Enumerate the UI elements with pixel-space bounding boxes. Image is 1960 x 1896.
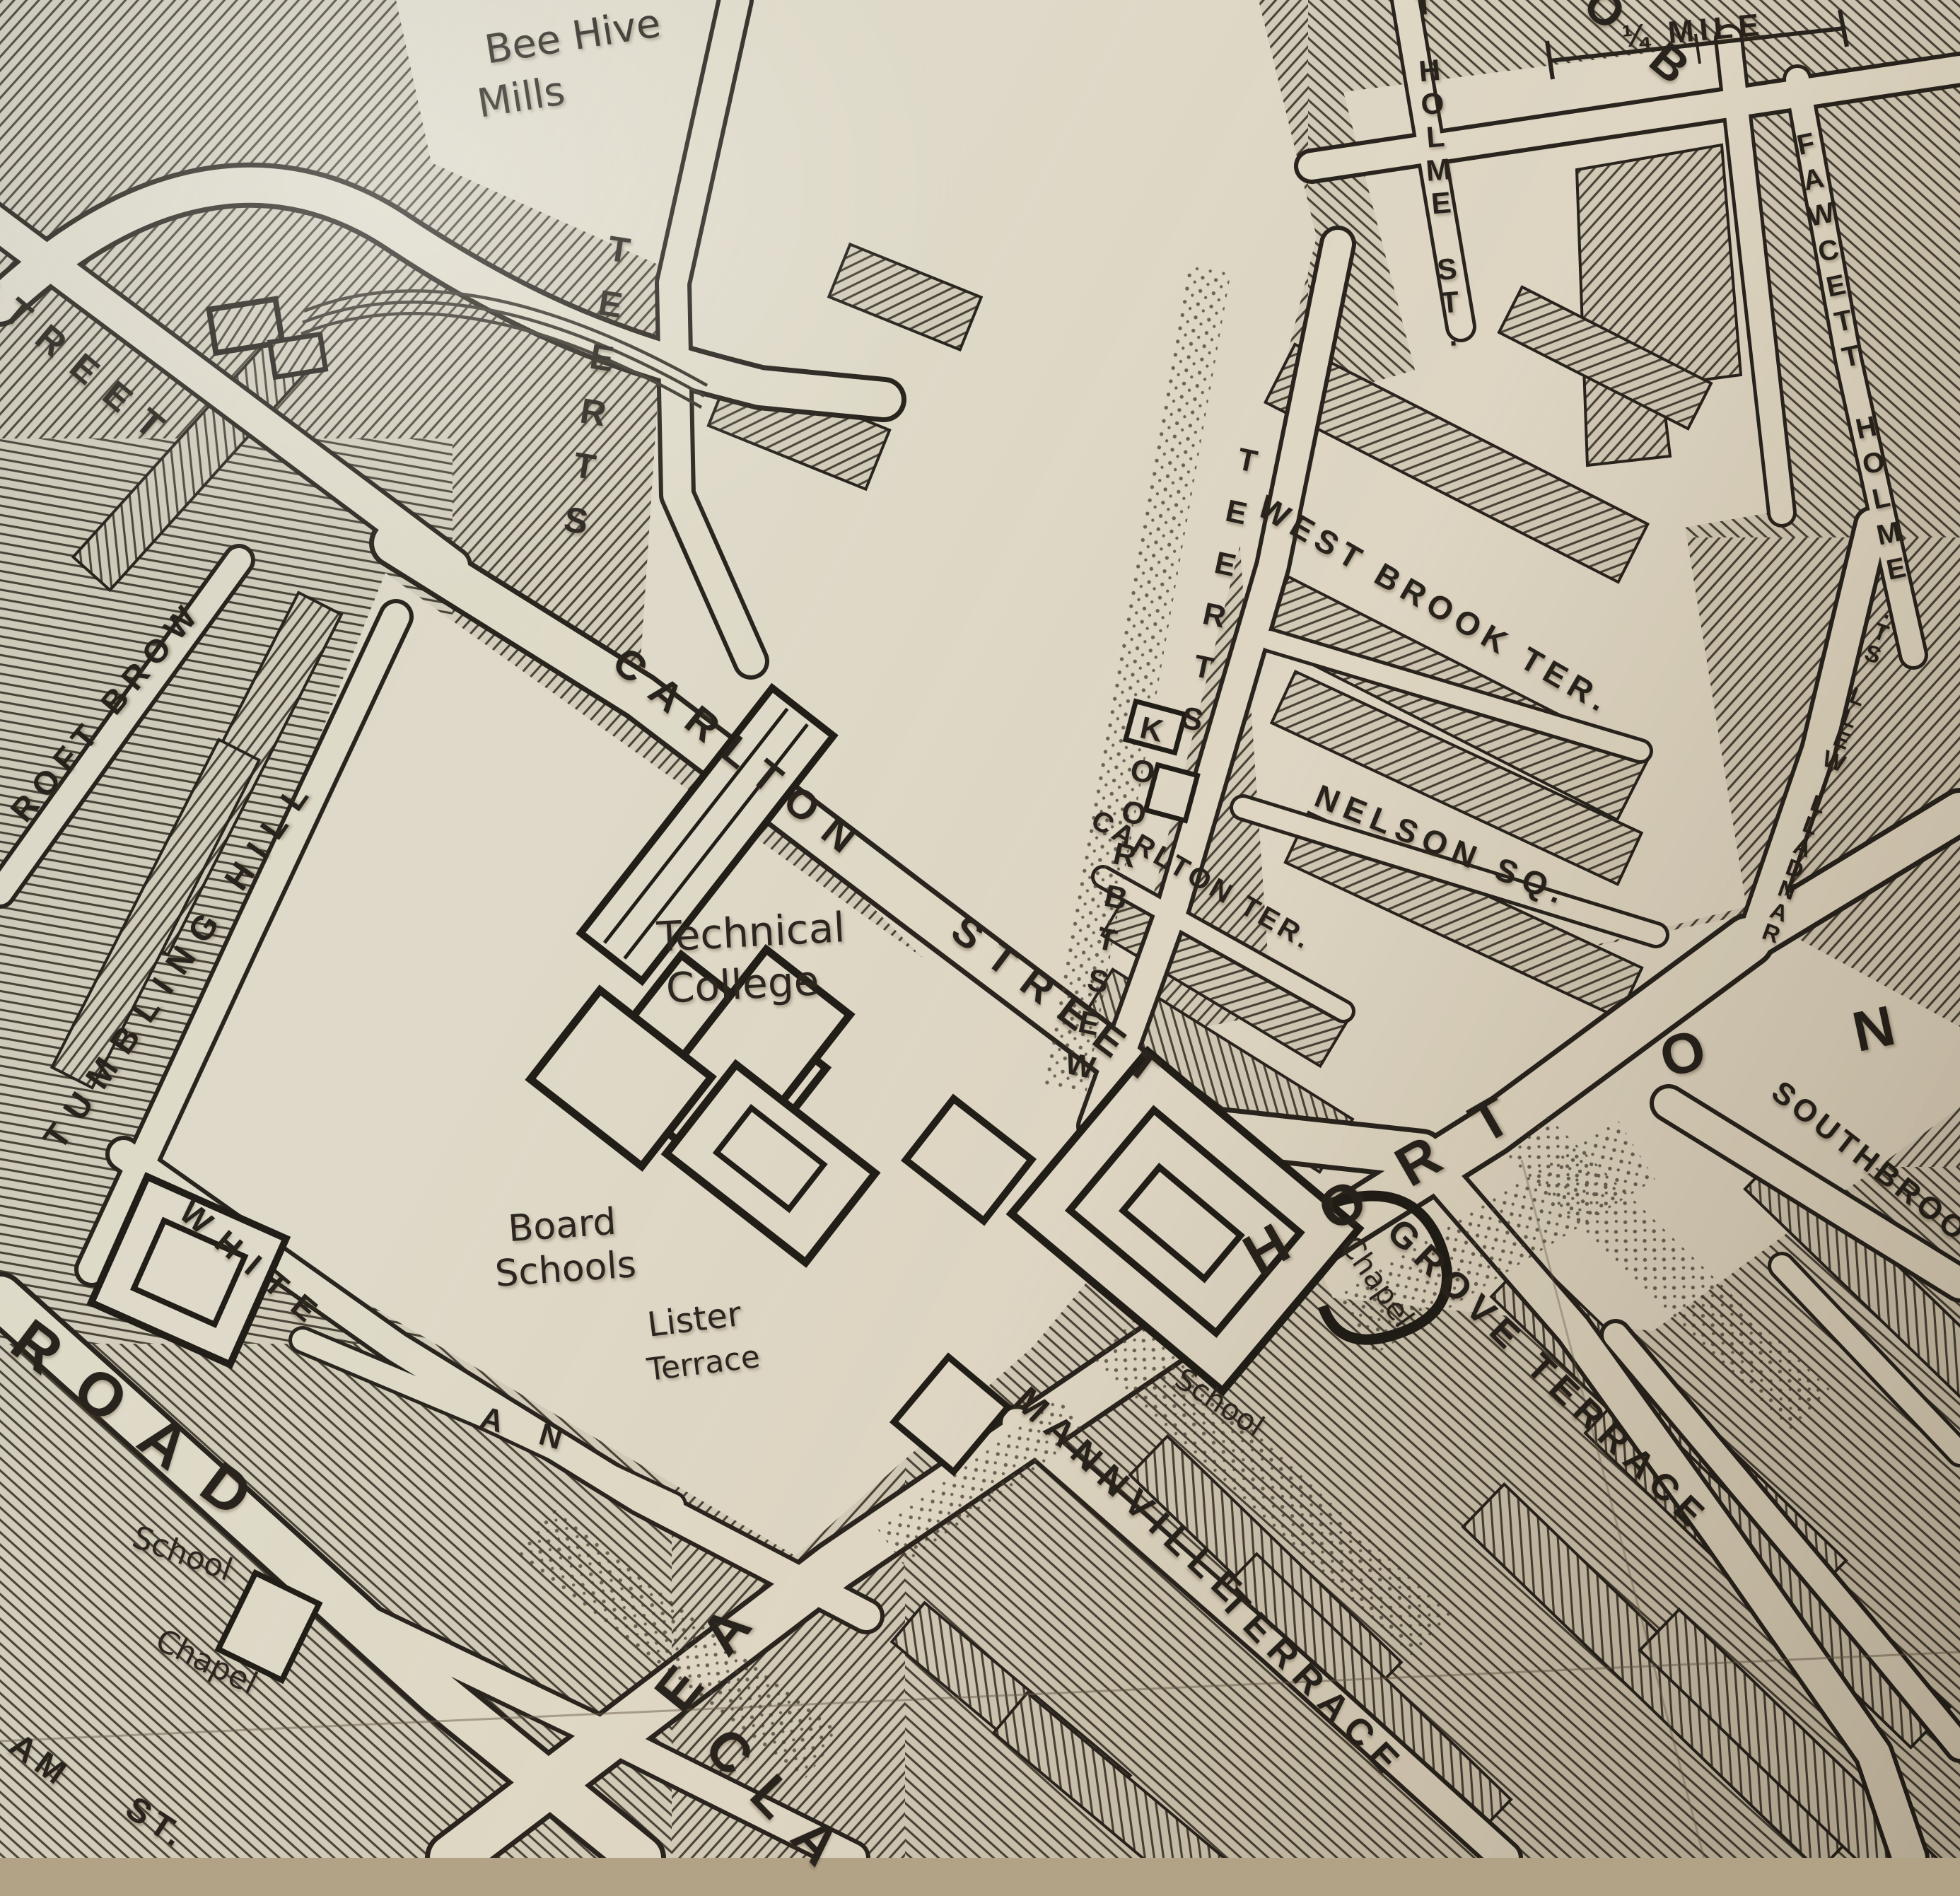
building-westbrook-2: [1145, 765, 1197, 821]
map-engraving: [0, 0, 1960, 1858]
map-photo: Bee HiveMillsT E E R T SW E S T H O L M …: [0, 0, 1960, 1858]
building-bee-hive-mills-2: [270, 335, 326, 378]
